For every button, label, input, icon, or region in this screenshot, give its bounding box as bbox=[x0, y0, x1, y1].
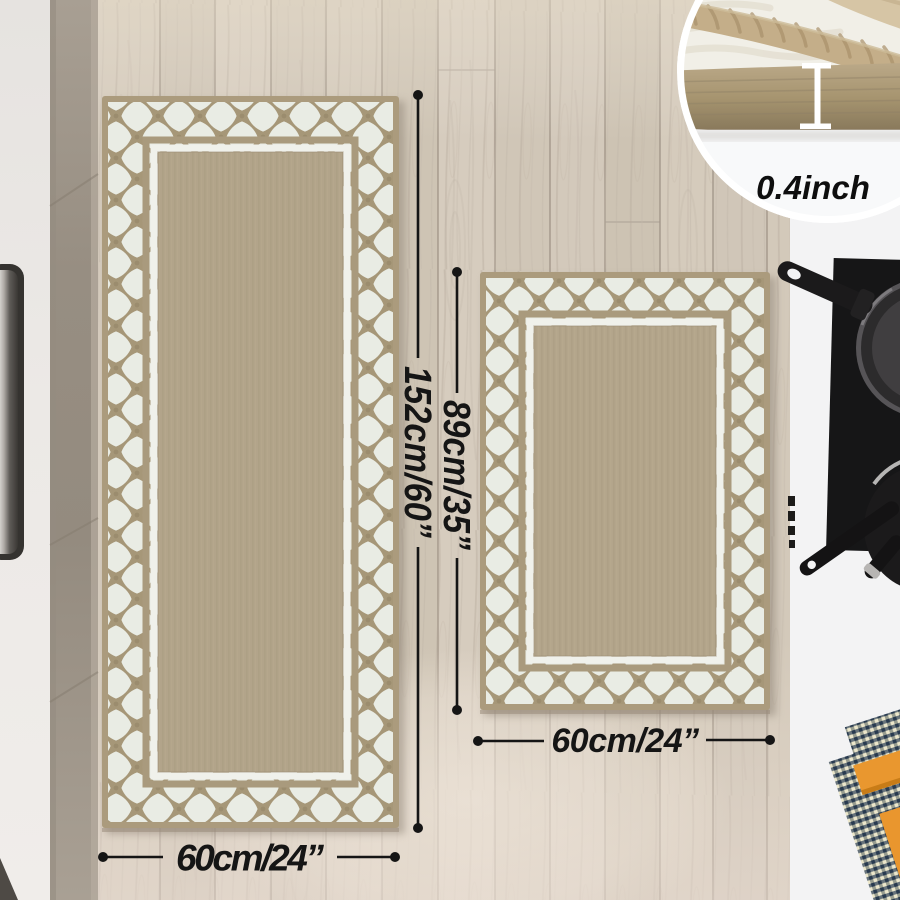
svg-text:0.4inch: 0.4inch bbox=[756, 169, 870, 206]
svg-text:89cm/35”: 89cm/35” bbox=[435, 400, 477, 550]
svg-text:60cm/24”: 60cm/24” bbox=[176, 838, 325, 879]
svg-text:60cm/24”: 60cm/24” bbox=[551, 722, 699, 760]
svg-text:152cm/60”: 152cm/60” bbox=[396, 366, 438, 538]
